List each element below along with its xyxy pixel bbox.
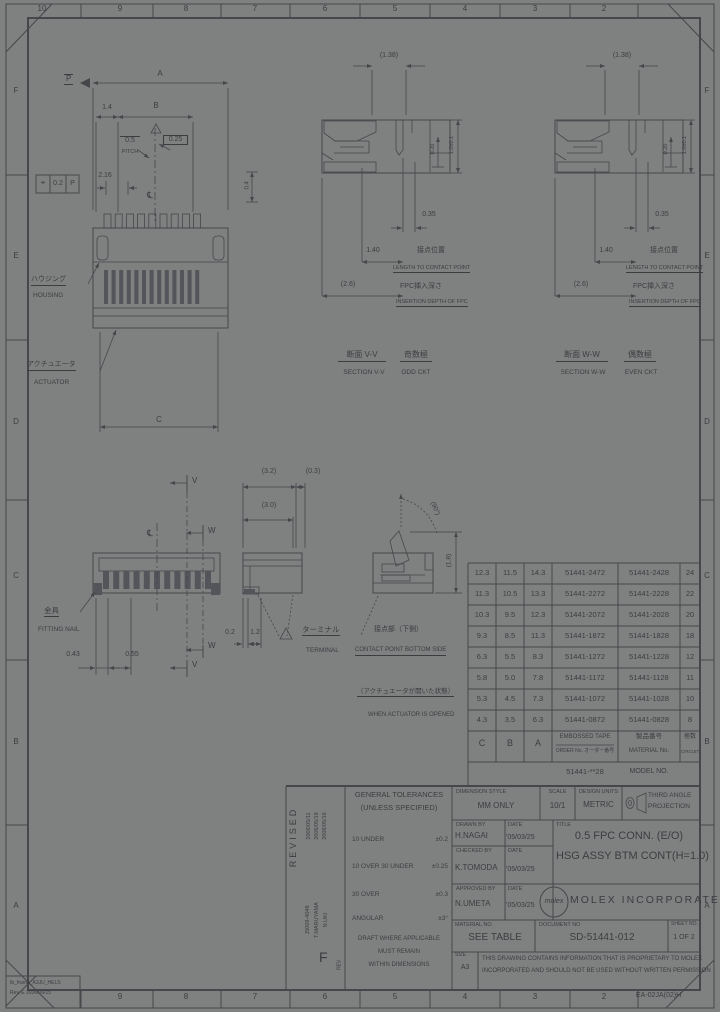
proprietary-note-2: INCORPORATED AND SHOULD NOT BE USED WITH… bbox=[482, 968, 711, 975]
table-cell-r2c4: 51441-2028 bbox=[619, 611, 679, 619]
approved-by-label: APPROVED BY bbox=[456, 886, 495, 892]
design-units-label: DESIGN UNITS bbox=[575, 789, 622, 795]
secw-caption-jp: 断面 W-W bbox=[556, 351, 608, 362]
size-label: SIZE bbox=[455, 953, 466, 959]
zone-bottom-8: 8 bbox=[178, 993, 194, 1002]
secw-dim-len: 1.40 bbox=[593, 247, 619, 255]
tol-row-2-value: ±0.25 bbox=[424, 863, 448, 870]
scale-label: SCALE bbox=[540, 789, 575, 795]
secv-depth-jp: FPC挿入深さ bbox=[400, 283, 442, 291]
dim-a: A bbox=[148, 70, 172, 79]
drawn-by-label: DRAWN BY bbox=[456, 822, 485, 828]
table-cell-r2c5: 20 bbox=[681, 611, 699, 619]
sheet-no-label: SHEET NO. bbox=[671, 922, 698, 928]
table-cell-r6c1: 4.5 bbox=[497, 695, 523, 703]
drawing-title-2: HSG ASSY BTM CONT(H=1.0) bbox=[556, 850, 702, 862]
zone-left-A: A bbox=[9, 902, 23, 911]
table-model-series: 51441-**28 bbox=[552, 768, 618, 776]
secv-caption-en: SECTION V-V bbox=[336, 369, 392, 376]
tol-row-2-label: 10 OVER 30 UNDER bbox=[352, 863, 413, 870]
table-header-circuit-1: 極数 bbox=[680, 734, 700, 741]
dim-0-43: 0.43 bbox=[60, 651, 86, 659]
zone-top-9: 9 bbox=[112, 5, 128, 14]
zone-top-2: 2 bbox=[596, 5, 612, 14]
zone-bottom-3: 3 bbox=[527, 993, 543, 1002]
table-header-circuit-2: CIRCUIT bbox=[680, 750, 700, 755]
actuator-open-jp: （アクチュエータが開いた状態） bbox=[357, 688, 454, 697]
molex-logo: molex bbox=[540, 898, 568, 906]
secw-contact-en: LENGTH TO CONTACT POINT bbox=[626, 265, 703, 273]
revised-label: REVISED bbox=[289, 797, 299, 877]
table-cell-r5c1: 5.0 bbox=[497, 674, 523, 682]
contact-bottom-en: CONTACT POINT BOTTOM SIDE bbox=[355, 647, 446, 656]
table-cell-r6c5: 10 bbox=[681, 695, 699, 703]
dim-0-55: 0.55 bbox=[119, 651, 145, 659]
dim-c: C bbox=[147, 416, 171, 425]
table-model-label: MODEL NO. bbox=[618, 768, 680, 776]
table-cell-r3c4: 51441-1828 bbox=[619, 632, 679, 640]
table-header-material-1: 製品番号 bbox=[618, 733, 680, 740]
table-header-a: A bbox=[524, 739, 552, 749]
table-cell-r7c0: 4.3 bbox=[469, 716, 495, 724]
tol-row-4-value: ±3° bbox=[424, 915, 448, 922]
zone-right-F: F bbox=[701, 87, 713, 96]
tolerances-title-2: (UNLESS SPECIFIED) bbox=[350, 804, 448, 812]
design-units-value: METRIC bbox=[575, 801, 622, 810]
revision-date-1: 2006/05/18 bbox=[314, 796, 320, 856]
secw-dim-0-35: 0.35 bbox=[649, 211, 675, 219]
material-no-label: MATERIAL NO. bbox=[455, 922, 493, 928]
table-cell-r1c0: 11.3 bbox=[469, 590, 495, 598]
rev-letter: F bbox=[319, 950, 328, 965]
table-cell-r3c5: 18 bbox=[681, 632, 699, 640]
frame-note-1: tb_frame_A3JU_HELS bbox=[10, 981, 61, 987]
zone-left-C: C bbox=[9, 572, 23, 581]
dim-pitch-label: PITCH bbox=[115, 149, 145, 155]
zone-bottom-5: 5 bbox=[387, 993, 403, 1002]
housing-label-jp: ハウジング bbox=[31, 276, 66, 286]
secv-depth-en: INSERTION DEPTH OF FPC bbox=[396, 299, 468, 307]
table-cell-r7c5: 8 bbox=[681, 716, 699, 724]
secv-dim-0-35: 0.35 bbox=[416, 211, 442, 219]
cut-w-bottom: W bbox=[208, 642, 216, 651]
secw-dim-width: (1.38) bbox=[604, 52, 640, 60]
title-label: TITLE bbox=[556, 822, 571, 828]
zone-right-D: D bbox=[701, 418, 713, 427]
tol-row-3-value: ±0.3 bbox=[424, 891, 448, 898]
table-cell-r6c0: 5.3 bbox=[469, 695, 495, 703]
zone-top-5: 5 bbox=[387, 5, 403, 14]
centerline-icon: ℄ bbox=[147, 191, 153, 201]
checked-name: K.TOMODA bbox=[455, 864, 498, 873]
cut-w-top: W bbox=[208, 527, 216, 536]
table-cell-r5c5: 11 bbox=[681, 674, 699, 682]
projection-label-2: PROJECTION bbox=[648, 803, 690, 810]
table-cell-r5c3: 51441-1172 bbox=[553, 674, 617, 682]
revision-date-2: 2008/05/16 bbox=[322, 796, 328, 856]
drawing-title-1: 0.5 FPC CONN. (E/O) bbox=[560, 830, 698, 842]
material-no-value: SEE TABLE bbox=[455, 932, 535, 943]
table-cell-r6c2: 7.3 bbox=[525, 695, 551, 703]
tol-note-3: WITHIN DIMENSIONS bbox=[350, 962, 448, 969]
drawn-date-label: DATE bbox=[508, 822, 522, 828]
secv-caption-jp: 断面 V-V bbox=[338, 351, 386, 362]
dim-pitch-value: 0.5 bbox=[120, 136, 140, 145]
table-cell-r3c0: 9.3 bbox=[469, 632, 495, 640]
dim-1-8: (1.8) bbox=[445, 546, 452, 576]
table-cell-r4c3: 51441-1272 bbox=[553, 653, 617, 661]
secv-ckt-en: ODD CKT bbox=[397, 369, 435, 376]
zone-right-E: E bbox=[701, 252, 713, 261]
secw-dim-h-inner: 0.20 bbox=[663, 134, 669, 164]
tol-row-4-label: ANGULAR bbox=[352, 915, 383, 922]
gdt-value: 0.2 bbox=[50, 180, 66, 188]
company-name: MOLEX INCORPORATED bbox=[570, 895, 700, 907]
table-cell-r6c4: 51441-1028 bbox=[619, 695, 679, 703]
dim-0-3: (0.3) bbox=[300, 468, 326, 476]
table-cell-r2c1: 9.5 bbox=[497, 611, 523, 619]
zone-left-E: E bbox=[9, 252, 23, 261]
zone-top-7: 7 bbox=[247, 5, 263, 14]
dim-style-label: DIMENSION STYLE bbox=[456, 789, 506, 795]
terminal-label-jp: ターミナル bbox=[302, 626, 340, 636]
zone-bottom-9: 9 bbox=[112, 993, 128, 1002]
front-centerline-icon: ℄ bbox=[147, 529, 153, 539]
table-cell-r7c3: 51441-0872 bbox=[553, 716, 617, 724]
zone-bottom-7: 7 bbox=[247, 993, 263, 1002]
revision-ref-0: J5009-4048 bbox=[305, 888, 311, 952]
revision-date-0: 2006/05/11 bbox=[306, 796, 312, 856]
table-cell-r4c5: 12 bbox=[681, 653, 699, 661]
dim-3-2: (3.2) bbox=[251, 468, 287, 476]
zone-right-C: C bbox=[701, 572, 713, 581]
checked-date-label: DATE bbox=[508, 848, 522, 854]
table-header-order-1: EMBOSSED TAPE bbox=[552, 734, 618, 741]
checked-by-label: CHECKED BY bbox=[456, 848, 492, 854]
actuator-label-en: ACTUATOR bbox=[34, 379, 69, 386]
secv-dim-depth: (2.6) bbox=[334, 281, 362, 289]
document-no-value: SD-51441-012 bbox=[540, 932, 664, 943]
dim-1-4: 1.4 bbox=[95, 104, 119, 112]
tol-note-1: DRAFT WHERE APPLICABLE bbox=[350, 936, 448, 943]
tolerances-title-1: GENERAL TOLERANCES bbox=[350, 791, 448, 799]
zone-bottom-6: 6 bbox=[317, 993, 333, 1002]
table-cell-r1c5: 22 bbox=[681, 590, 699, 598]
tol-row-1-value: ±0.2 bbox=[424, 836, 448, 843]
secv-dim-h-outer: 1.0±0.1 bbox=[449, 127, 455, 163]
approved-date: '05/03/25 bbox=[506, 902, 535, 910]
secw-ckt-jp: 偶数極 bbox=[624, 351, 656, 362]
secw-caption-en: SECTION W-W bbox=[554, 369, 612, 376]
zone-right-B: B bbox=[701, 738, 713, 747]
table-cell-r7c4: 51441-0828 bbox=[619, 716, 679, 724]
table-cell-r0c0: 12.3 bbox=[469, 569, 495, 577]
zone-top-8: 8 bbox=[178, 5, 194, 14]
proprietary-note-1: THIS DRAWING CONTAINS INFORMATION THAT I… bbox=[482, 956, 702, 963]
scale-value: 10/1 bbox=[540, 802, 575, 811]
dim-3-0: (3.0) bbox=[251, 502, 287, 510]
drawn-date: '05/03/25 bbox=[506, 834, 535, 842]
tol-note-2: MUST REMAIN bbox=[350, 949, 448, 956]
actuator-open-en: WHEN ACTUATOR IS OPENED bbox=[368, 712, 454, 719]
gdt-position-icon: ⌖ bbox=[36, 179, 50, 188]
terminal-label-en: TERMINAL bbox=[306, 647, 339, 654]
dim-0-2: 0.2 bbox=[221, 629, 239, 637]
secv-ckt-jp: 奇数極 bbox=[400, 351, 432, 362]
gdt-datum: P bbox=[66, 180, 79, 188]
zone-bottom-2: 2 bbox=[596, 993, 612, 1002]
table-cell-r2c0: 10.3 bbox=[469, 611, 495, 619]
table-cell-r0c2: 14.3 bbox=[525, 569, 551, 577]
secw-contact-jp: 接点位置 bbox=[650, 247, 678, 255]
drawing-sheet: P A 1.4 B 0.5 PITCH 0.25 2.16 ⌖ 0.2 P ℄ … bbox=[0, 0, 720, 1012]
table-cell-r4c1: 5.5 bbox=[497, 653, 523, 661]
secw-depth-jp: FPC挿入深さ bbox=[633, 283, 675, 291]
table-cell-r1c3: 51441-2272 bbox=[553, 590, 617, 598]
table-header-material-2: MATERIAL No. bbox=[618, 748, 680, 755]
approved-date-label: DATE bbox=[508, 886, 522, 892]
table-header-order-2: ORDER No. オーダー番号 bbox=[552, 749, 618, 755]
revision-ref-2: N.UKI bbox=[323, 888, 329, 952]
dim-1-2: 1.2 bbox=[246, 629, 264, 637]
table-cell-r1c4: 51441-2228 bbox=[619, 590, 679, 598]
table-cell-r0c1: 11.5 bbox=[497, 569, 523, 577]
secv-contact-jp: 接点位置 bbox=[417, 247, 445, 255]
cut-v-top: V bbox=[192, 477, 197, 486]
dim-2-16: 2.16 bbox=[93, 172, 117, 180]
approved-name: N.UMETA bbox=[455, 900, 490, 909]
checked-date: '05/03/25 bbox=[506, 866, 535, 874]
secv-dim-len: 1.40 bbox=[360, 247, 386, 255]
dim-0-4: 0.4 bbox=[245, 175, 252, 195]
zone-left-D: D bbox=[9, 418, 23, 427]
table-cell-r3c1: 8.5 bbox=[497, 632, 523, 640]
secw-depth-en: INSERTION DEPTH OF FPC bbox=[629, 299, 701, 307]
zone-top-6: 6 bbox=[317, 5, 333, 14]
table-cell-r0c5: 24 bbox=[681, 569, 699, 577]
table-cell-r0c3: 51441-2472 bbox=[553, 569, 617, 577]
table-cell-r1c2: 13.3 bbox=[525, 590, 551, 598]
dim-style-value: MM ONLY bbox=[454, 802, 538, 811]
zone-left-F: F bbox=[9, 87, 23, 96]
zone-top-4: 4 bbox=[457, 5, 473, 14]
table-header-b: B bbox=[496, 739, 524, 749]
zone-right-A: A bbox=[701, 902, 713, 911]
table-cell-r2c2: 12.3 bbox=[525, 611, 551, 619]
zone-left-B: B bbox=[9, 738, 23, 747]
frame-note-2: Rev. E 2006/06/15 bbox=[10, 991, 51, 997]
dim-b: B bbox=[144, 102, 168, 111]
actuator-label-jp: アクチュエータ bbox=[27, 361, 76, 371]
sheet-no-value: 1 OF 2 bbox=[668, 934, 700, 942]
secw-dim-h-outer: 1.0±0.1 bbox=[682, 127, 688, 163]
table-cell-r2c3: 51441-2072 bbox=[553, 611, 617, 619]
zone-bottom-4: 4 bbox=[457, 993, 473, 1002]
table-cell-r7c1: 3.5 bbox=[497, 716, 523, 724]
zone-top-3: 3 bbox=[527, 5, 543, 14]
cut-v-bottom: V bbox=[192, 661, 197, 670]
table-cell-r3c2: 11.3 bbox=[525, 632, 551, 640]
table-cell-r5c2: 7.8 bbox=[525, 674, 551, 682]
fitting-nail-jp: 金具 bbox=[44, 607, 59, 617]
form-code: EA-02JA(02)H bbox=[636, 992, 681, 1000]
table-cell-r6c3: 51441-1072 bbox=[553, 695, 617, 703]
table-cell-r5c0: 5.8 bbox=[469, 674, 495, 682]
table-cell-r4c0: 6.3 bbox=[469, 653, 495, 661]
tol-row-1-label: 10 UNDER bbox=[352, 836, 384, 843]
secv-contact-en: LENGTH TO CONTACT POINT bbox=[393, 265, 470, 273]
fitting-nail-en: FITTING NAIL bbox=[38, 626, 80, 633]
view-front bbox=[78, 475, 220, 677]
table-cell-r3c3: 51441-1872 bbox=[553, 632, 617, 640]
view-top bbox=[36, 78, 258, 432]
drawn-name: H.NAGAI bbox=[455, 832, 488, 841]
view-section bbox=[322, 66, 462, 296]
rev-label: REV bbox=[337, 950, 343, 980]
revision-ref-1: T.MARUYAMA bbox=[314, 888, 320, 952]
table-header-c: C bbox=[468, 739, 496, 749]
housing-label-en: HOUSING bbox=[33, 292, 63, 299]
contact-bottom-jp: 接点部（下側） bbox=[374, 626, 423, 634]
datum-p-label: P bbox=[64, 74, 73, 85]
projection-label-1: THIRD ANGLE bbox=[648, 792, 691, 799]
table-cell-r4c2: 8.3 bbox=[525, 653, 551, 661]
table-cell-r7c2: 6.3 bbox=[525, 716, 551, 724]
zone-top-10: 10 bbox=[34, 5, 50, 14]
secv-dim-width: (1.38) bbox=[371, 52, 407, 60]
size-value: A3 bbox=[455, 964, 475, 972]
table-cell-r1c1: 10.5 bbox=[497, 590, 523, 598]
secw-ckt-en: EVEN CKT bbox=[621, 369, 661, 376]
secv-dim-h-inner: 0.20 bbox=[430, 134, 436, 164]
dim-0-25: 0.25 bbox=[163, 135, 188, 145]
table-cell-r0c4: 51441-2428 bbox=[619, 569, 679, 577]
document-no-label: DOCUMENT NO bbox=[539, 922, 580, 928]
secw-dim-depth: (2.6) bbox=[567, 281, 595, 289]
tol-row-3-label: 30 OVER bbox=[352, 891, 379, 898]
table-cell-r4c4: 51441-1228 bbox=[619, 653, 679, 661]
table-cell-r5c4: 51441-1128 bbox=[619, 674, 679, 682]
